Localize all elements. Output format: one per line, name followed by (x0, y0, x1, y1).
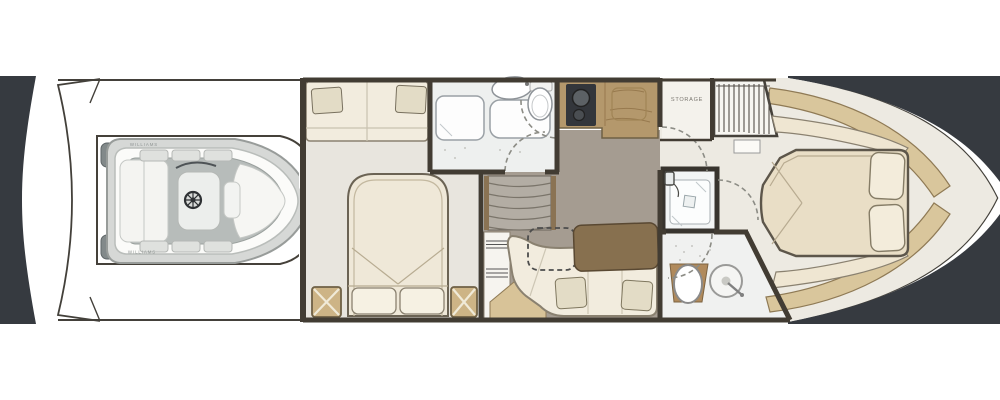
settee-pillow-right (395, 85, 426, 114)
tender-brand-label-top: WILLIAMS (130, 142, 158, 147)
dinette (490, 223, 659, 318)
fore-toilet-bowl (674, 265, 702, 303)
shower-drain (683, 195, 695, 207)
settee-pillow-left (311, 87, 343, 114)
tender: WILLIAMS WILLIAMS (101, 139, 310, 263)
floor-plan-svg: WILLIAMS WILLIAMS (0, 0, 1000, 400)
storage-label: STORAGE (671, 97, 703, 103)
stove-burner-small (574, 110, 585, 121)
tender-helm-seat (224, 182, 240, 218)
bed-pillow-left (352, 288, 396, 314)
dinette-pillow-left (555, 277, 587, 309)
shower-head-icon (665, 172, 674, 185)
tender-steering-wheel-icon (185, 192, 201, 208)
lever-knob (740, 293, 744, 297)
stairs (488, 176, 551, 230)
bed-pillow-right (400, 288, 444, 314)
fore-step (734, 140, 760, 153)
stove-burner-large (573, 90, 590, 107)
stair-stringer-right (551, 176, 556, 230)
fore-pillow-bottom (869, 204, 905, 252)
sink-faucet-dot (525, 82, 529, 86)
stair-stringer-left (484, 176, 489, 230)
dinette-pillow-right (621, 280, 653, 311)
storage-floor (662, 80, 712, 140)
tender-brand-label-bottom: WILLIAMS (128, 250, 156, 255)
fore-pillow-top (869, 152, 905, 200)
floor-plan-canvas: WILLIAMS WILLIAMS (0, 0, 1000, 400)
toilet-bowl (528, 88, 552, 120)
fore-shower-room (663, 169, 717, 231)
dinette-table (573, 223, 659, 272)
shower-tray (436, 96, 484, 140)
